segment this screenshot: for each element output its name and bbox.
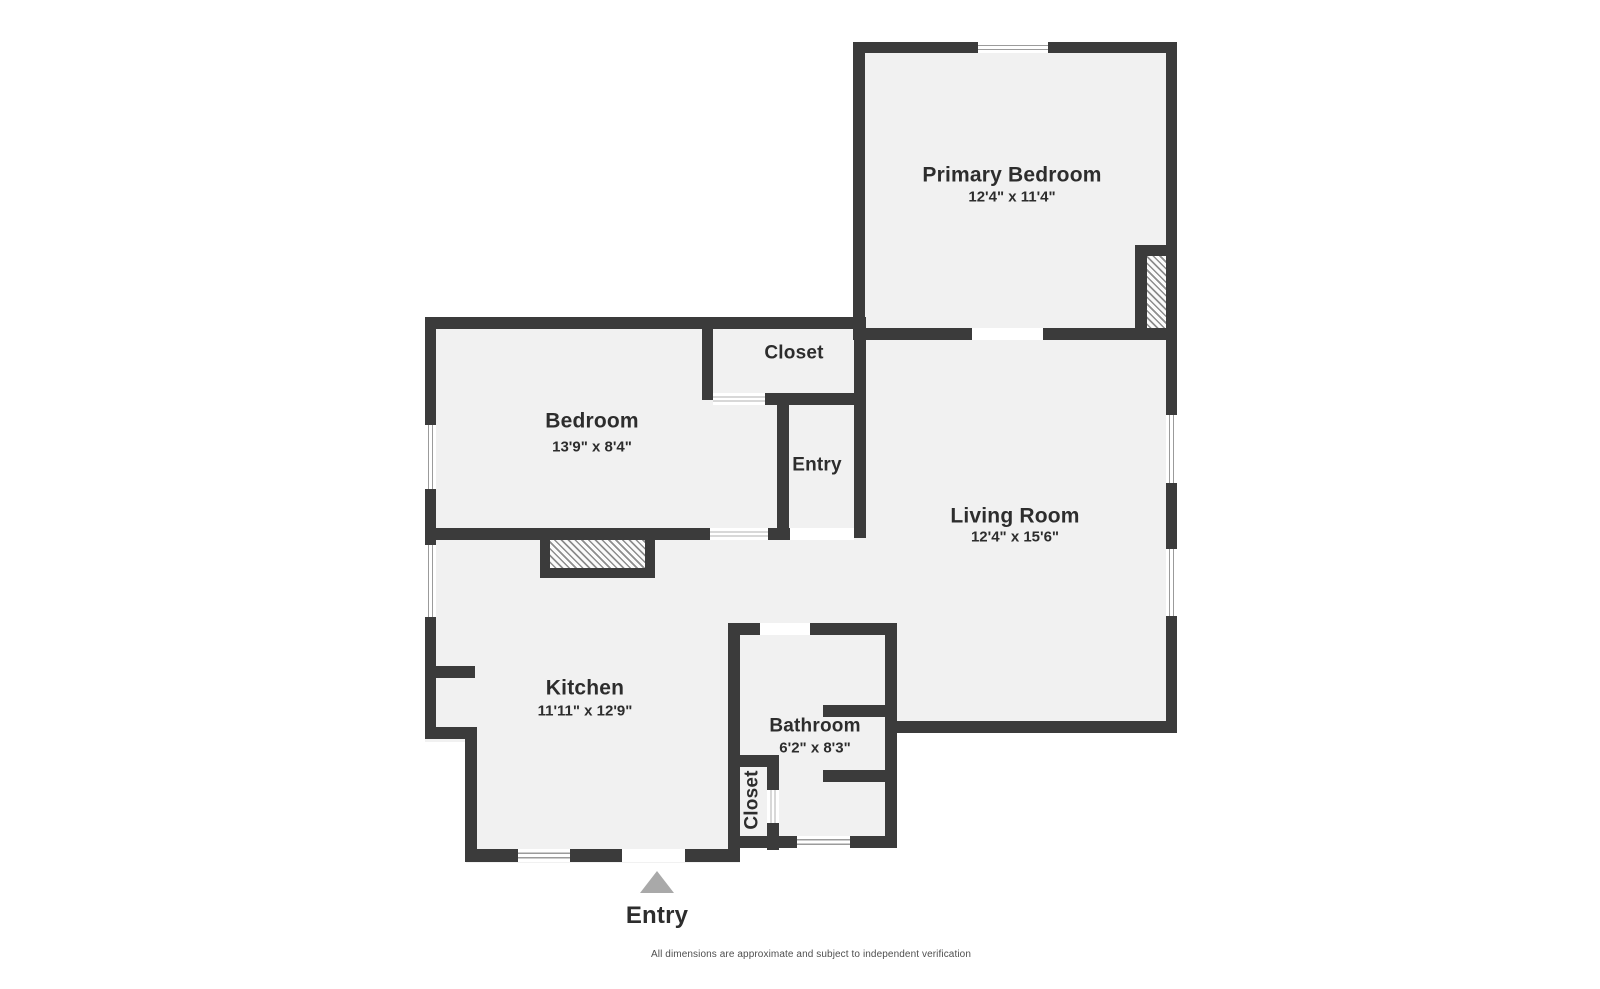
wall-segment — [853, 42, 865, 340]
wall-opening — [972, 328, 1043, 340]
wall-segment — [1166, 616, 1177, 733]
wall-segment — [685, 849, 740, 862]
living-room-dimensions: 12'4" x 15'6" — [971, 530, 1059, 545]
wall-segment — [885, 623, 897, 848]
primary-bedroom-dimensions: 12'4" x 11'4" — [968, 190, 1055, 205]
window-glyph — [1166, 549, 1177, 616]
wall-segment — [465, 727, 477, 861]
bedroom-label: Bedroom — [545, 411, 639, 432]
closet-top-label: Closet — [764, 344, 823, 363]
wall-segment — [1166, 483, 1177, 549]
wall-opening — [790, 528, 854, 540]
entry-direction-triangle — [640, 871, 674, 893]
door-glyph — [710, 528, 768, 540]
wall-segment — [570, 849, 622, 862]
floor-area — [713, 528, 897, 635]
wall-segment — [425, 317, 866, 329]
wall-opening — [622, 849, 685, 862]
wall-segment — [853, 42, 978, 53]
floorplan-canvas: Primary Bedroom 12'4" x 11'4" Closet Bed… — [0, 0, 1600, 989]
wall-segment — [425, 666, 475, 678]
window-glyph — [1166, 415, 1177, 483]
dimensions-disclaimer: All dimensions are approximate and subje… — [651, 950, 971, 960]
wall-segment — [810, 623, 897, 635]
wall-segment — [768, 528, 790, 540]
entry-marker-label: Entry — [626, 904, 688, 928]
wall-segment — [425, 528, 710, 540]
wall-segment — [850, 836, 897, 848]
wall-segment — [540, 568, 655, 578]
wall-segment — [1043, 328, 1177, 340]
window-glyph — [425, 545, 436, 617]
hatch-area — [550, 540, 645, 568]
wall-segment — [1135, 245, 1147, 340]
wall-segment — [777, 393, 789, 530]
wall-segment — [728, 623, 760, 635]
wall-segment — [823, 770, 885, 782]
hatch-area — [1147, 254, 1166, 330]
bathroom-label: Bathroom — [769, 717, 860, 736]
kitchen-label: Kitchen — [546, 678, 624, 699]
window-glyph — [518, 849, 570, 862]
primary-bedroom-label: Primary Bedroom — [922, 165, 1101, 186]
wall-segment — [854, 317, 866, 538]
wall-segment — [853, 328, 972, 340]
closet-bottom-label: Closet — [743, 770, 762, 829]
bedroom-dimensions: 13'9" x 8'4" — [552, 440, 632, 455]
wall-opening — [760, 623, 810, 635]
floor-area — [466, 742, 740, 863]
window-glyph — [425, 425, 436, 489]
kitchen-dimensions: 11'11" x 12'9" — [538, 704, 633, 719]
wall-segment — [702, 317, 713, 400]
window-glyph — [797, 836, 850, 848]
entry-room-label: Entry — [792, 456, 842, 475]
wall-segment — [728, 623, 740, 850]
wall-segment — [425, 317, 436, 425]
wall-segment — [465, 849, 518, 862]
door-glyph — [767, 790, 779, 823]
wall-segment — [885, 721, 1177, 733]
window-glyph — [978, 42, 1048, 53]
bathroom-dimensions: 6'2" x 8'3" — [779, 741, 850, 756]
wall-segment — [728, 836, 797, 848]
living-room-label: Living Room — [950, 506, 1079, 527]
wall-segment — [1048, 42, 1177, 53]
wall-segment — [1166, 42, 1177, 415]
wall-segment — [767, 755, 779, 790]
door-glyph — [713, 393, 765, 405]
